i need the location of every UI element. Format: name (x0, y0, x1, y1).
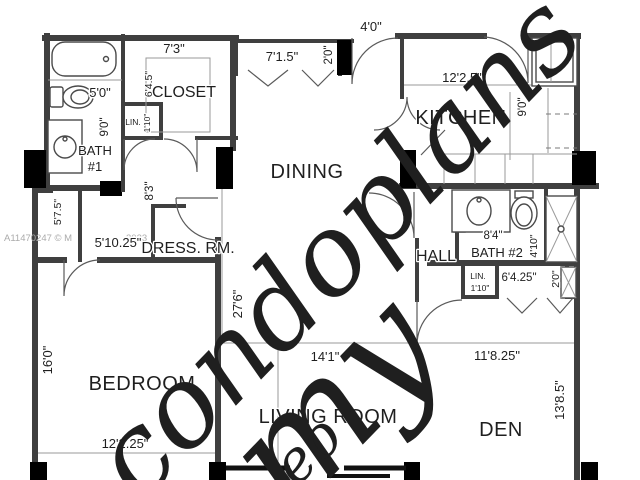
column (216, 147, 233, 189)
mls-watermark: A11470247 © M (4, 233, 72, 244)
dim-entry-width: 4'0" (360, 19, 382, 34)
room-label-bath1: BATH (78, 143, 112, 158)
faucet-bath1 (63, 137, 67, 141)
column (24, 150, 46, 188)
bedroom-door (64, 260, 100, 296)
bathtub-drain (104, 57, 109, 62)
hall-closet-bifold (507, 298, 573, 313)
room-label-den: DEN (479, 419, 523, 441)
room-label-bath1-num: #1 (88, 159, 102, 174)
column (404, 462, 420, 480)
dim-linen-top: 1'10" (142, 114, 152, 133)
toilet-tank-bath1 (50, 87, 63, 107)
closet1-door (164, 139, 197, 172)
column (572, 151, 596, 185)
room-label-closet: CLOSET (152, 84, 216, 101)
toilet-bowl-bath2 (516, 204, 532, 226)
linen-top-door (124, 139, 155, 170)
dim-bath1-width: 5'0" (89, 85, 111, 100)
dim-linen-hall: 1'10" (471, 283, 490, 293)
column (30, 462, 47, 480)
column (581, 462, 598, 480)
utility-closet-x (561, 267, 576, 298)
faucet-bath2 (477, 198, 481, 202)
dim-closet1-width: 7'3" (163, 41, 185, 56)
dim-bath1-length: 9'0" (99, 117, 111, 136)
dim-den-width: 11'8.25" (474, 348, 520, 363)
wall-step (100, 181, 122, 196)
dim-bedroom-length: 16'0" (40, 345, 55, 374)
dim-entry-closet-width: 7'1.5" (266, 49, 299, 64)
dim-bath2-depth: 4'10" (528, 234, 540, 258)
dim-dress-width: 5'10.25" (95, 235, 142, 250)
dim-bath2-width: 8'4" (483, 230, 502, 242)
dim-den-length: 13'8.5" (552, 380, 567, 420)
dim-entry-closet-depth: 2'0" (323, 45, 335, 64)
entry-door (352, 38, 398, 84)
room-label-dress-rm: DRESS. RM. (141, 240, 234, 257)
room-label-linen-top: LIN. (125, 117, 141, 127)
dim-nook: 5'7.5" (52, 199, 64, 225)
entry-closet-bifold (248, 70, 334, 86)
room-label-linen-hall: LIN. (470, 271, 486, 281)
dim-hall-closet2-depth: 2'0" (550, 270, 562, 288)
entry-closet-wall (337, 40, 352, 75)
floor-plan-page: A11470247 © M 2023 7'3" 7'1.5" 2'0" 4'0"… (0, 0, 640, 480)
toilet-bowl-bath1 (71, 90, 89, 104)
floor-plan-svg: A11470247 © M 2023 7'3" 7'1.5" 2'0" 4'0"… (0, 0, 640, 480)
dim-hall-closet-width: 6'4.25" (501, 272, 536, 284)
shower-bath2 (546, 196, 577, 262)
room-label-bath2: BATH #2 (471, 245, 523, 260)
dim-corridor: 8'3" (144, 181, 156, 200)
